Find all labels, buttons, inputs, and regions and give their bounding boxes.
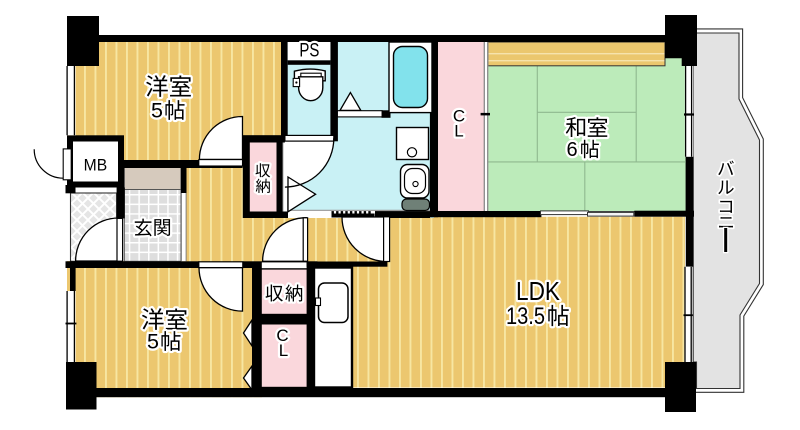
svg-text:MB: MB	[84, 155, 108, 174]
svg-text:L: L	[454, 122, 463, 141]
svg-text:6: 6	[566, 139, 577, 161]
svg-text:5: 5	[151, 99, 163, 123]
svg-text:5: 5	[147, 330, 159, 354]
svg-text:L: L	[279, 341, 288, 360]
svg-text:LDK: LDK	[516, 276, 561, 306]
svg-text:13.5: 13.5	[506, 303, 545, 330]
svg-text:PS: PS	[299, 41, 319, 62]
